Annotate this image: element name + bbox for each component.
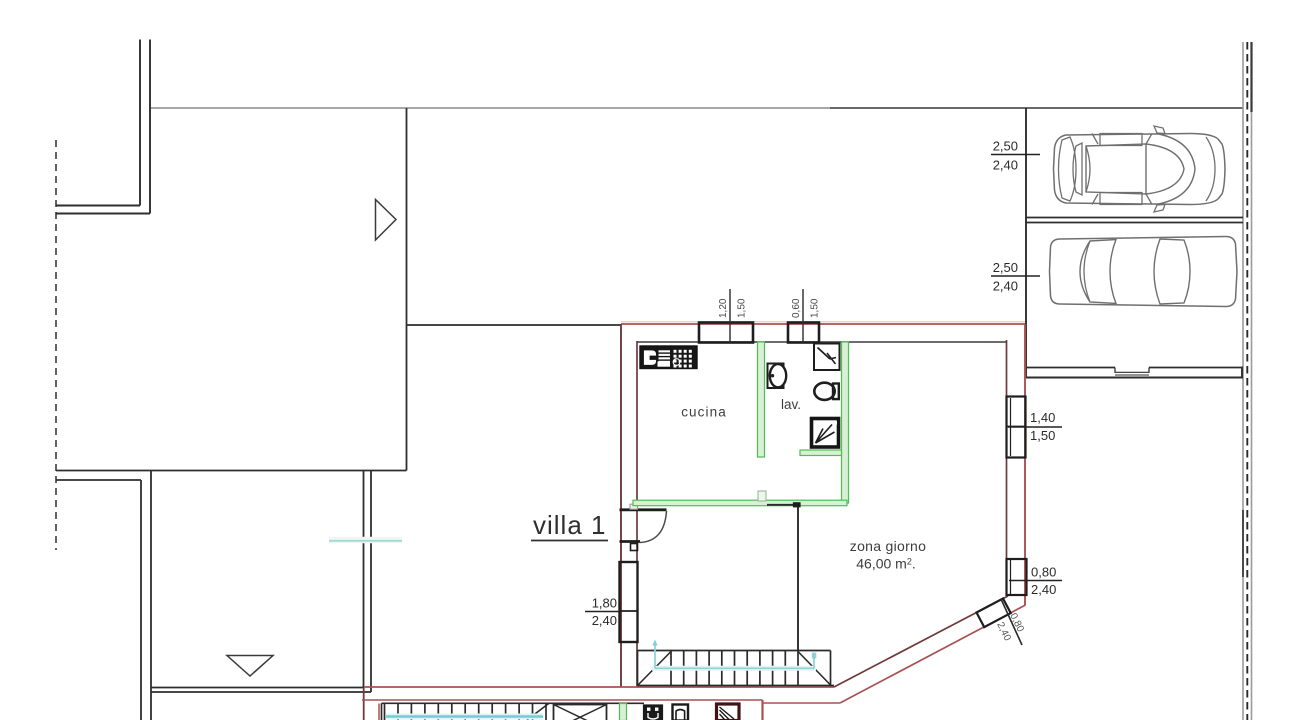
svg-text:2,40: 2,40 xyxy=(1031,582,1056,597)
svg-text:1,50: 1,50 xyxy=(737,298,748,318)
svg-text:0,60: 0,60 xyxy=(791,298,802,318)
svg-text:2,50: 2,50 xyxy=(993,139,1018,154)
svg-text:cucina: cucina xyxy=(681,405,727,420)
svg-text:2,40: 2,40 xyxy=(592,613,617,628)
svg-text:2,50: 2,50 xyxy=(993,260,1018,275)
svg-text:1,40: 1,40 xyxy=(1030,410,1055,425)
svg-text:1,50: 1,50 xyxy=(810,298,821,318)
svg-text:0,80: 0,80 xyxy=(1031,565,1056,580)
svg-text:zona giorno: zona giorno xyxy=(850,538,926,554)
svg-text:2,40: 2,40 xyxy=(993,158,1018,173)
svg-text:1,50: 1,50 xyxy=(1030,428,1055,443)
svg-text:1,20: 1,20 xyxy=(718,298,729,318)
svg-text:villa 1: villa 1 xyxy=(533,510,606,540)
svg-text:1,80: 1,80 xyxy=(592,596,617,611)
svg-text:46,00 m2.: 46,00 m2. xyxy=(856,556,916,572)
svg-text:lav.: lav. xyxy=(781,397,801,412)
svg-text:2,40: 2,40 xyxy=(993,279,1018,294)
